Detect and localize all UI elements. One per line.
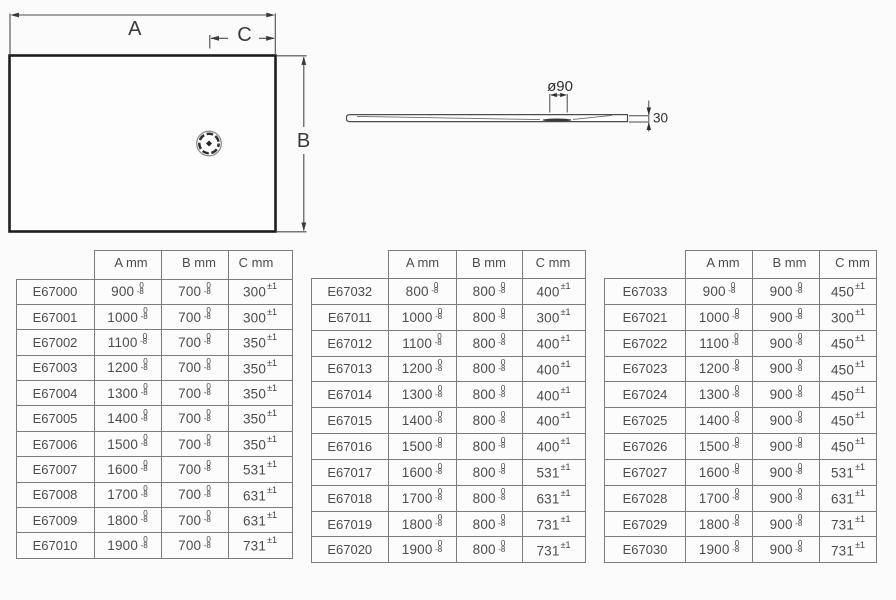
svg-text:A: A	[128, 18, 142, 40]
svg-text:C: C	[237, 24, 251, 46]
svg-text:B: B	[297, 130, 310, 152]
svg-text:ø90: ø90	[547, 78, 573, 95]
svg-text:30: 30	[653, 110, 668, 125]
